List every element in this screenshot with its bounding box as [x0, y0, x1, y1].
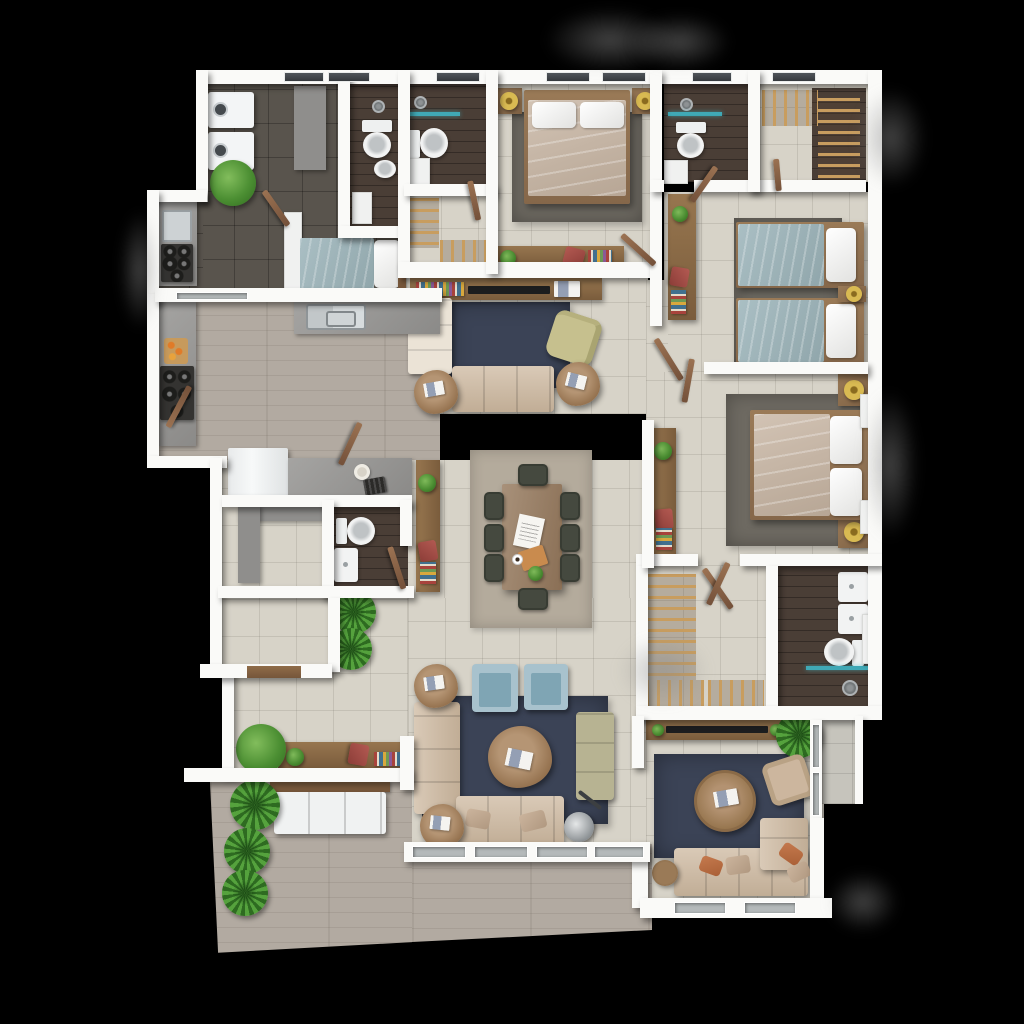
wall	[328, 598, 340, 672]
master-pillow	[830, 416, 862, 464]
living-sofa-left	[414, 702, 460, 814]
twin-bed-duvet	[738, 224, 824, 286]
living-window	[474, 846, 528, 858]
family-tv	[468, 286, 550, 294]
twin-books	[671, 290, 686, 314]
wall	[636, 706, 882, 720]
wall	[404, 184, 496, 196]
bedroom1-pillow	[532, 102, 576, 128]
maid-bed-duvet	[300, 238, 374, 290]
maid-bed-pillow	[374, 240, 400, 288]
closet2-rack	[762, 90, 818, 126]
bedroom1-lamp	[500, 92, 518, 110]
bath3-toilet-bowl	[677, 133, 704, 158]
wall	[184, 768, 412, 782]
shadow-smudge	[120, 210, 160, 330]
twin-desk-plant	[672, 206, 688, 222]
bedroom1-pillow	[580, 102, 624, 128]
dining-chair	[560, 524, 580, 552]
wall	[740, 554, 882, 566]
washer	[208, 92, 254, 128]
den-tv	[666, 726, 768, 733]
family-magazine	[554, 281, 580, 297]
kitchenette-stove	[161, 244, 193, 282]
bath1-cabinet	[352, 192, 372, 224]
dining-chair	[484, 492, 504, 520]
wall	[398, 70, 410, 268]
corridor-console-books	[656, 528, 672, 550]
wall	[322, 500, 334, 598]
bath1-toilet-bowl	[363, 132, 391, 158]
closet1-rack	[405, 198, 439, 248]
wall	[632, 716, 644, 768]
terrace-palm	[222, 870, 268, 916]
master-duvet	[754, 414, 830, 516]
window	[772, 72, 816, 82]
wall	[400, 500, 412, 546]
kitchen-counter	[288, 458, 412, 496]
hall-console-plant	[418, 474, 436, 492]
window	[436, 72, 480, 82]
wall	[338, 70, 350, 232]
dining-chair	[484, 554, 504, 582]
window	[328, 72, 370, 82]
powder-toilet-bowl	[347, 517, 375, 545]
den-side-table	[652, 860, 678, 886]
window	[284, 72, 324, 82]
kitchen-pass-window	[176, 292, 248, 300]
wall	[704, 362, 868, 374]
wall	[222, 495, 412, 507]
master-bath-toilet-bowl	[824, 638, 854, 666]
terrace-bench	[274, 792, 386, 834]
master-bath-shower-glass	[806, 666, 868, 670]
kitchen-plate	[354, 464, 370, 480]
wall	[210, 458, 222, 672]
living-magazine	[423, 675, 445, 692]
master-pillow	[830, 468, 862, 516]
twin-desk-chair	[669, 266, 690, 288]
laundry-plant	[210, 160, 256, 206]
bath3-cabinet	[664, 160, 688, 184]
kitchen-cutting-board	[164, 338, 188, 364]
bath1-bidet	[374, 160, 396, 178]
wall	[650, 180, 664, 192]
balcony-window	[812, 772, 820, 816]
bath3-shower-head	[680, 98, 693, 111]
entry-threshold	[247, 666, 301, 678]
living-armchair-blue	[472, 664, 518, 712]
wall	[810, 818, 824, 910]
living-window	[594, 846, 644, 858]
twin-lamp	[846, 286, 862, 302]
closet2-rack	[818, 98, 860, 184]
twin-bed-pillow	[826, 228, 856, 282]
den-pillow	[725, 854, 751, 875]
family-sofa	[452, 366, 554, 412]
master-bath-sink	[838, 572, 868, 602]
living-pillow	[465, 808, 492, 830]
foyer-plant-large	[236, 724, 286, 774]
living-armchair-blue	[524, 664, 568, 710]
pantry-counter	[238, 505, 260, 583]
dining-plant	[528, 566, 543, 581]
wall	[222, 666, 234, 776]
dining-chair	[560, 492, 580, 520]
living-floor-lamp	[564, 812, 594, 842]
living-sofa-green	[576, 712, 614, 800]
bath2-shower-glass	[408, 112, 460, 116]
hall-console-books	[420, 562, 436, 584]
master-bath-shower-head	[842, 680, 858, 696]
dining-chair	[518, 464, 548, 486]
bath3-toilet-tank	[676, 122, 706, 133]
den-window	[674, 902, 726, 914]
corridor-console-chair	[654, 508, 674, 529]
shadow-smudge	[618, 636, 708, 706]
foyer-console-books	[374, 752, 400, 766]
den-plant	[652, 724, 664, 736]
kitchen-fridge	[228, 448, 288, 496]
wall	[748, 70, 760, 192]
living-window	[412, 846, 466, 858]
wall	[398, 262, 652, 278]
hall-console-chair	[417, 540, 438, 563]
window	[546, 72, 590, 82]
balcony-floor	[822, 718, 858, 804]
dining-cup	[512, 554, 523, 565]
bath1-shower-head	[372, 100, 385, 113]
shadow-smudge	[630, 14, 730, 70]
wall	[766, 566, 778, 706]
laundry-cabinet	[294, 86, 326, 170]
bath2-toilet-bowl	[420, 128, 448, 158]
foyer-console-plant	[286, 748, 304, 766]
dining-chair	[518, 588, 548, 610]
kitchen-sink	[306, 304, 366, 330]
balcony-window	[812, 724, 820, 768]
wall	[196, 70, 208, 202]
kitchenette-sink	[162, 210, 192, 242]
wall	[642, 420, 654, 568]
bath1-toilet-tank	[362, 120, 392, 132]
foyer-console-chair	[347, 743, 369, 767]
bath2-shower-head	[414, 96, 427, 109]
terrace-palm	[224, 828, 270, 874]
twin-bed-duvet	[738, 300, 824, 362]
window	[692, 72, 732, 82]
shadow-smudge	[856, 88, 926, 188]
wall	[218, 586, 414, 598]
powder-sink	[334, 548, 358, 582]
shadow-smudge	[828, 872, 898, 932]
corridor-console-plant	[654, 442, 672, 460]
terrace-palm	[230, 780, 280, 830]
shadow-smudge	[862, 390, 918, 540]
wall	[400, 736, 414, 790]
wall	[650, 70, 662, 326]
living-window	[536, 846, 588, 858]
dining-chair	[560, 554, 580, 582]
powder-toilet-tank	[336, 518, 347, 544]
window	[602, 72, 646, 82]
den-window	[744, 902, 796, 914]
wall	[486, 70, 498, 274]
floor-plan	[0, 0, 1024, 1024]
living-magazine	[429, 815, 450, 831]
bath3-shower-glass	[668, 112, 722, 116]
twin-bed-pillow	[826, 304, 856, 358]
wall	[855, 716, 863, 804]
dining-chair	[484, 524, 504, 552]
wall	[640, 898, 832, 918]
bath2-cabinet	[408, 158, 430, 186]
closet3-rack	[708, 680, 764, 706]
